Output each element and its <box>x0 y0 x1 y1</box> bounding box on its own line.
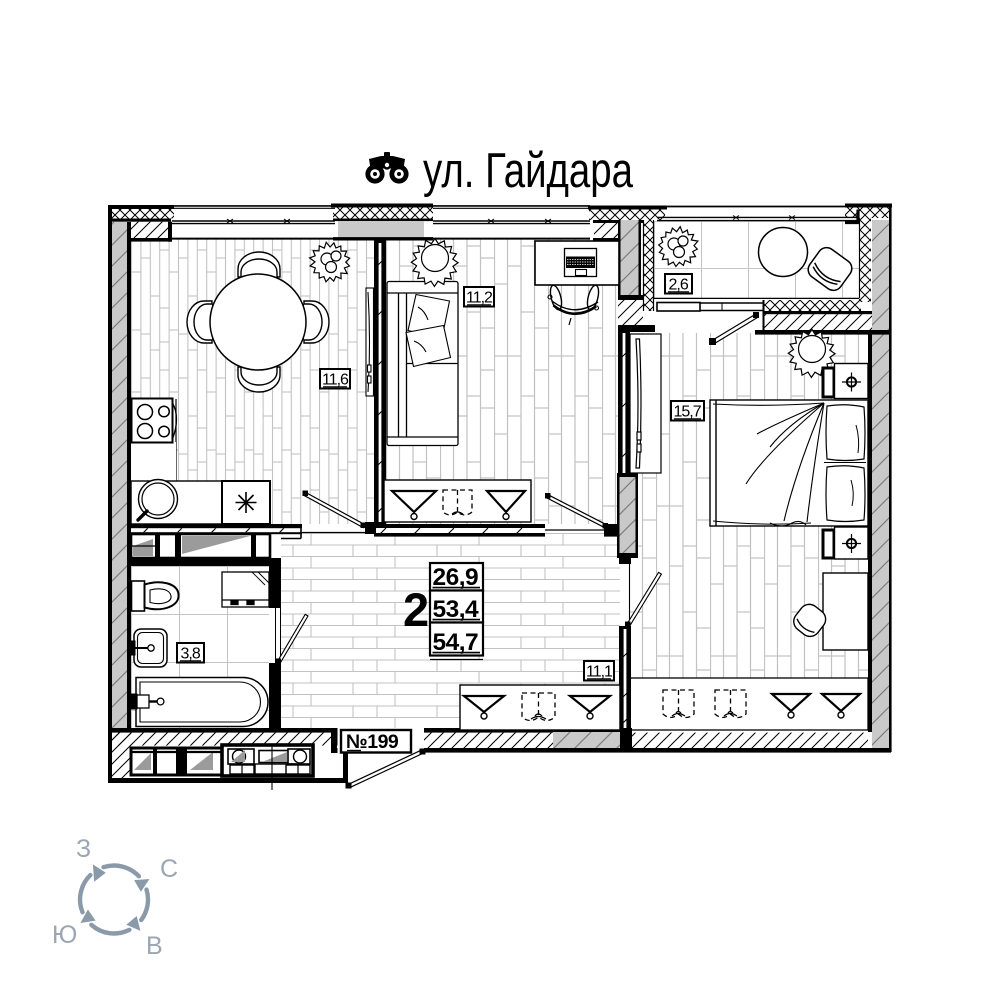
svg-text:Ю: Ю <box>52 921 77 949</box>
svg-text:2,6: 2,6 <box>669 277 689 294</box>
svg-text:С: С <box>160 855 178 883</box>
svg-text:15,7: 15,7 <box>674 404 702 421</box>
svg-text:З: З <box>76 835 91 863</box>
svg-text:11,1: 11,1 <box>586 664 613 681</box>
svg-text:2: 2 <box>403 583 429 636</box>
svg-text:ул. Гайдара: ул. Гайдара <box>423 144 634 198</box>
svg-text:11,2: 11,2 <box>466 290 493 307</box>
svg-text:11,6: 11,6 <box>322 372 349 389</box>
svg-text:№199: №199 <box>346 731 399 753</box>
svg-text:В: В <box>146 932 163 960</box>
svg-text:3,8: 3,8 <box>181 646 201 663</box>
